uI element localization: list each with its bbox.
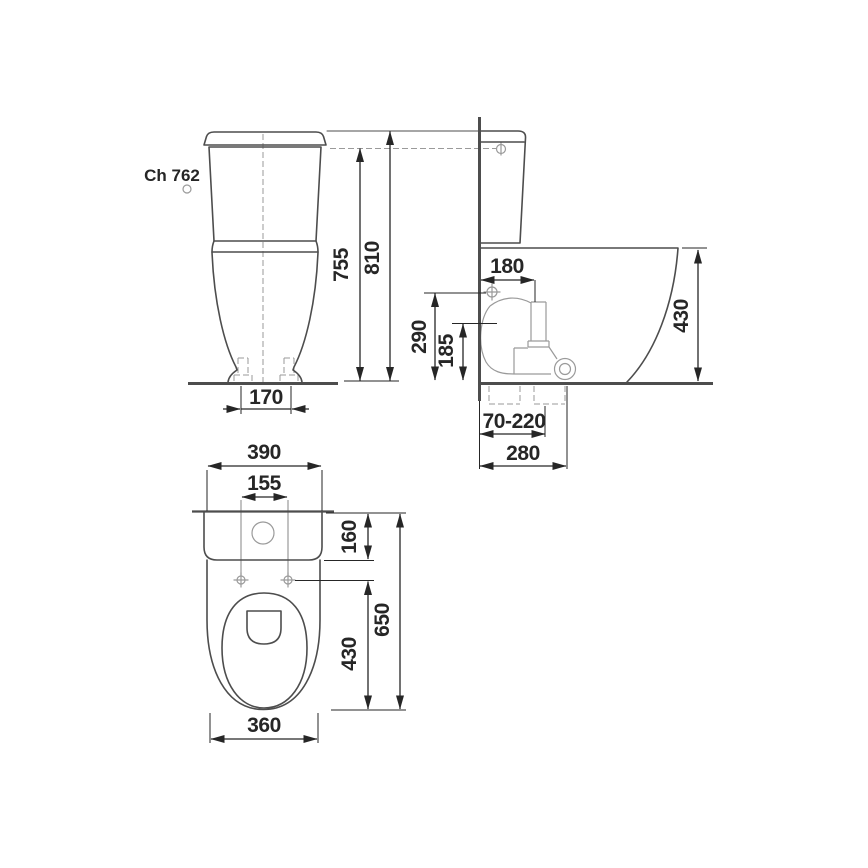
front-fixing-mark-right: [280, 358, 298, 382]
dim-label-height-body: 755: [330, 247, 353, 282]
model-label: Ch 762: [144, 166, 200, 185]
top-water-area: [247, 611, 281, 644]
top-bowl-outer: [207, 560, 320, 710]
top-view: [204, 513, 322, 710]
water-inlet-ticks: [484, 284, 501, 301]
light-details: [183, 143, 576, 588]
dim-label-flush-pipe-offset: 180: [490, 255, 524, 278]
dim-label-outlet-adjust-range: 70-220: [483, 410, 546, 433]
dim-label-water-inlet-height: 290: [408, 320, 431, 354]
extension-lines: [207, 248, 707, 743]
front-bowl-top-edge: [212, 241, 318, 252]
dim-label-height-total: 810: [361, 241, 384, 275]
flush-button: [252, 522, 274, 544]
outlet-ghost-right: [534, 386, 565, 404]
technical-drawing-page: Ch 762 755 810 170 180 290 185 430 70-22…: [0, 0, 868, 868]
dim-label-base-depth: 280: [506, 442, 540, 465]
product-outlines: [204, 131, 678, 710]
front-tank-lid: [204, 132, 326, 145]
dim-label-rim-height: 430: [670, 299, 693, 333]
outlet-flange-outer: [555, 359, 576, 380]
front-view: [204, 132, 326, 383]
front-tank-body: [209, 147, 321, 241]
top-tank: [204, 513, 322, 561]
dimension-drawing: Ch 762 755 810 170 180 290 185 430 70-22…: [0, 0, 868, 868]
dim-label-seat-holes-spacing: 155: [247, 472, 282, 495]
dim-label-total-width: 390: [247, 441, 281, 464]
dimension-lines: [207, 132, 707, 744]
dim-label-total-depth: 650: [371, 603, 394, 637]
dim-label-seat-length: 430: [338, 637, 361, 671]
dim-label-foot-width: 170: [249, 386, 283, 409]
outlet-ghost-left: [489, 386, 520, 404]
model-marker-circle: [183, 185, 191, 193]
front-bowl-body: [212, 252, 318, 383]
flush-pipe: [514, 302, 557, 374]
trap-outline: [481, 298, 551, 374]
outlet-flange-inner: [560, 364, 571, 375]
side-tank: [481, 131, 526, 243]
dim-label-outlet-height: 185: [435, 333, 458, 368]
dim-label-tank-depth: 160: [338, 520, 361, 554]
dim-label-bowl-width: 360: [247, 714, 281, 737]
